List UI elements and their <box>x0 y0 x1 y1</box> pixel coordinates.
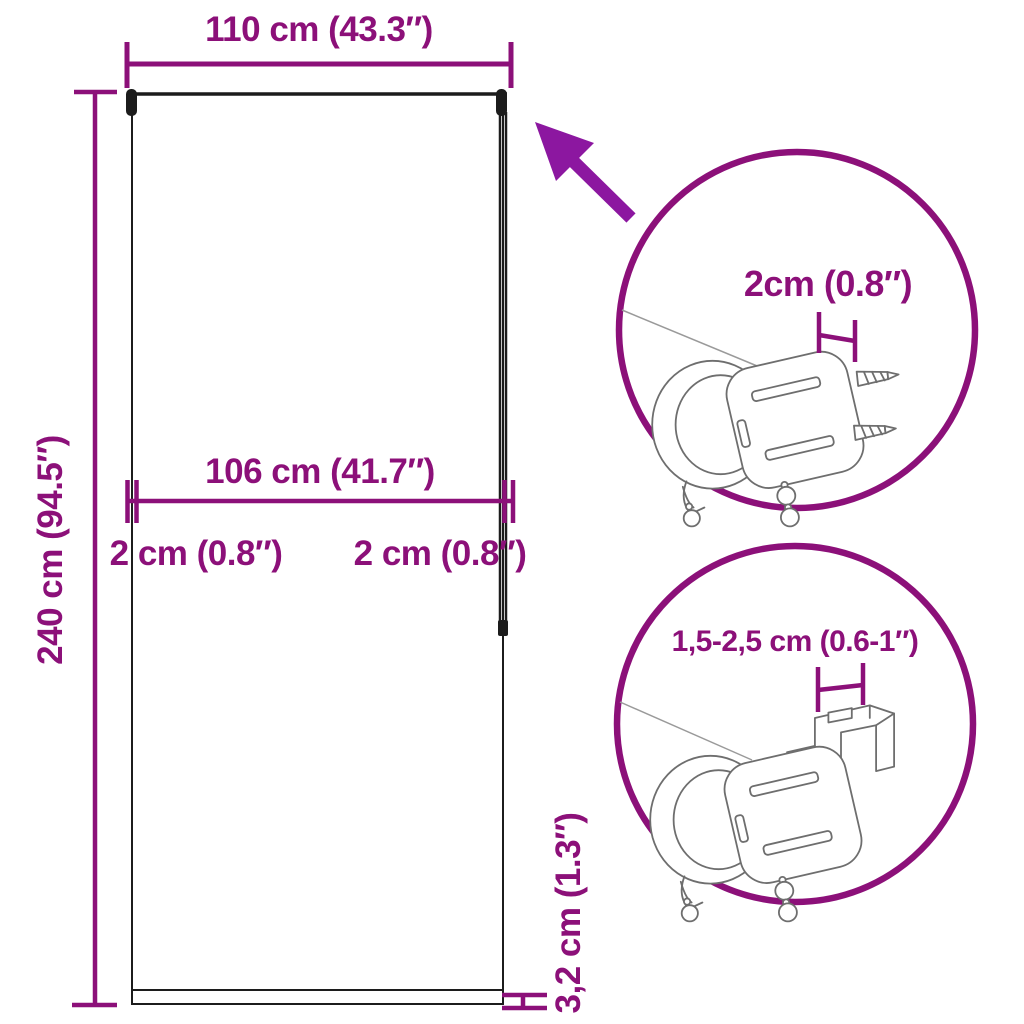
width-dimension: 110 cm (43.3″) <box>127 10 511 88</box>
fabric-width-dimension-label: 106 cm (41.7″) <box>205 452 435 491</box>
wall-edge-line <box>620 702 752 760</box>
detail-circle-top: 2cm (0.8″) <box>619 152 975 526</box>
diagram-canvas: 110 cm (43.3″) 240 cm (94.5″) 106 cm (41… <box>0 0 1024 1024</box>
detail-bottom-dimension <box>818 663 863 712</box>
top-bar-left-cap <box>126 89 137 116</box>
bottom-bar-dimension-label: 3,2 cm (1.3″) <box>549 813 588 1014</box>
detail-circle-bottom: 1,5-2,5 cm (0.6-1″) <box>617 546 973 921</box>
detail-bottom-label: 1,5-2,5 cm (0.6-1″) <box>672 625 919 658</box>
side-gap-right-label: 2 cm (0.8″) <box>354 534 527 573</box>
mounting-bracket-screw-detail <box>652 346 899 526</box>
pull-chain-connector <box>498 620 508 636</box>
screw-icon <box>854 421 897 440</box>
height-dimension: 240 cm (94.5″) <box>31 92 117 1005</box>
detail-top-label: 2cm (0.8″) <box>744 263 912 304</box>
side-gap-left-label: 2 cm (0.8″) <box>110 534 283 573</box>
screw-icon <box>857 367 900 386</box>
top-bar-right-cap <box>496 89 507 116</box>
bottom-bar-dimension: 3,2 cm (1.3″) <box>502 813 588 1014</box>
wall-edge-line <box>622 310 762 368</box>
detail-arrow <box>535 122 631 218</box>
height-dimension-label: 240 cm (94.5″) <box>31 435 70 665</box>
width-dimension-label: 110 cm (43.3″) <box>205 10 433 49</box>
bracket-art <box>652 346 869 526</box>
